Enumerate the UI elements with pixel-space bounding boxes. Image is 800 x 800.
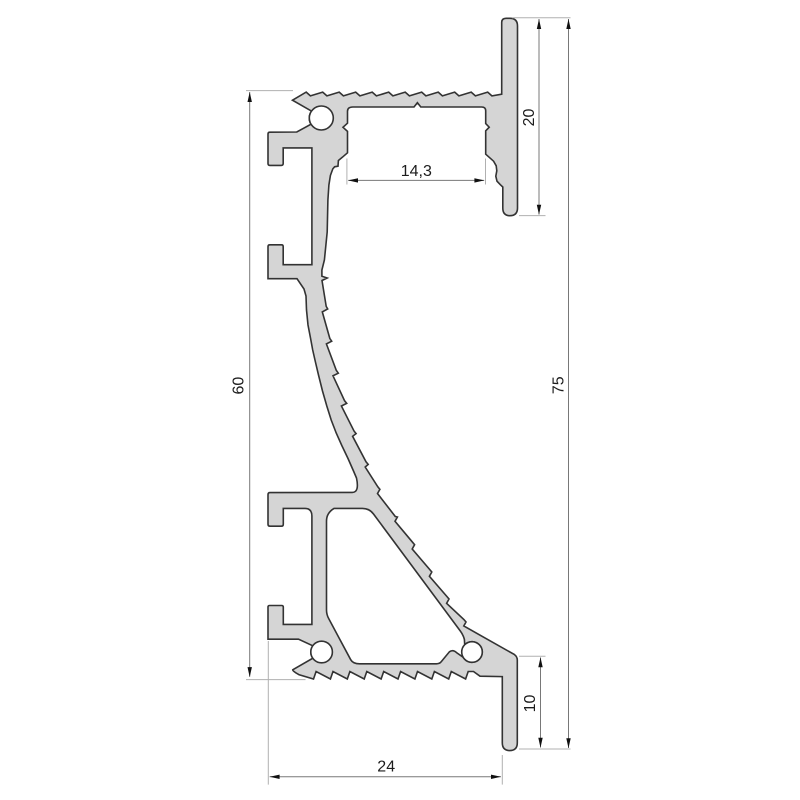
svg-text:20: 20 [521,109,538,127]
svg-text:24: 24 [377,759,395,776]
svg-text:14,3: 14,3 [401,163,432,180]
svg-text:10: 10 [522,695,539,713]
svg-text:75: 75 [550,376,567,394]
svg-text:60: 60 [231,377,248,395]
